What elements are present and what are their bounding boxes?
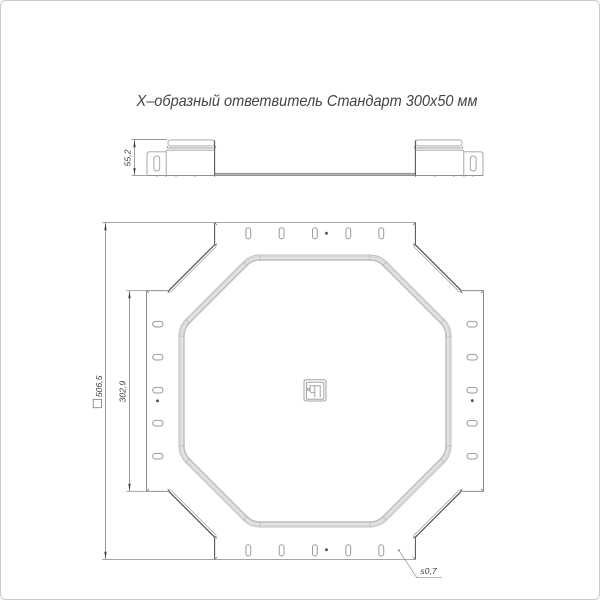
svg-text:302,9: 302,9 [118,381,128,403]
svg-text:506,5: 506,5 [94,375,104,397]
svg-text:Х–образный ответвитель Стандар: Х–образный ответвитель Стандарт 300х50 м… [136,93,478,110]
svg-text:s0,7: s0,7 [420,566,438,576]
svg-text:55,2: 55,2 [123,149,133,166]
